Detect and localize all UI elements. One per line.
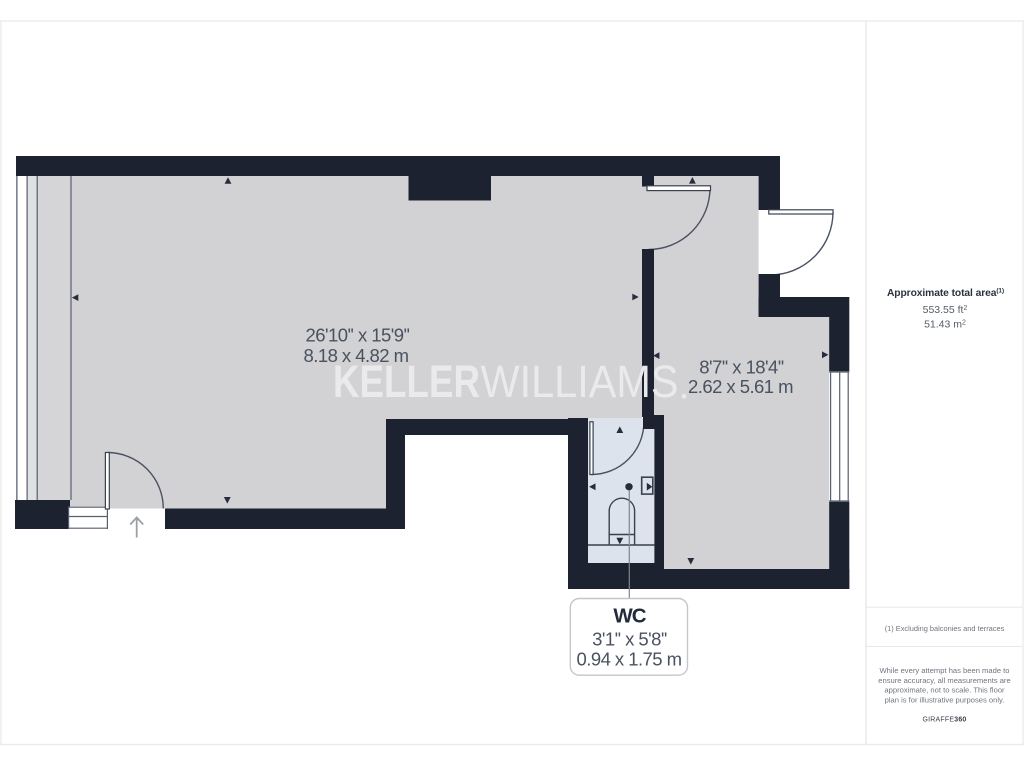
svg-text:WC: WC bbox=[613, 605, 646, 628]
svg-text:Approximate total area(1): Approximate total area(1) bbox=[887, 288, 1004, 300]
svg-text:26'10'' x 15'9'': 26'10'' x 15'9'' bbox=[306, 325, 410, 346]
svg-text:WILLIAMS: WILLIAMS bbox=[481, 357, 679, 407]
svg-text:KELLER: KELLER bbox=[333, 356, 480, 406]
svg-text:3'1'' x 5'8'': 3'1'' x 5'8'' bbox=[592, 629, 667, 650]
svg-text:(1) Excluding balconies and te: (1) Excluding balconies and terraces bbox=[885, 624, 1005, 633]
svg-text:While every attempt has been m: While every attempt has been made to bbox=[879, 666, 1009, 675]
svg-text:approximate, not to scale. Thi: approximate, not to scale. This floor bbox=[884, 686, 1005, 695]
svg-text:2.62 x 5.61 m: 2.62 x 5.61 m bbox=[688, 376, 793, 397]
svg-text:ensure accuracy, all measureme: ensure accuracy, all measurements are bbox=[878, 676, 1010, 685]
svg-text:0.94 x 1.75 m: 0.94 x 1.75 m bbox=[577, 649, 682, 670]
svg-text:8'7'' x 18'4'': 8'7'' x 18'4'' bbox=[699, 357, 783, 378]
svg-text:plan is for illustrative purpo: plan is for illustrative purposes only. bbox=[885, 695, 1005, 704]
svg-text:51.43 m2: 51.43 m2 bbox=[924, 319, 966, 331]
svg-text:GIRAFFE360: GIRAFFE360 bbox=[922, 717, 966, 724]
svg-text:553.55 ft2: 553.55 ft2 bbox=[923, 304, 968, 316]
